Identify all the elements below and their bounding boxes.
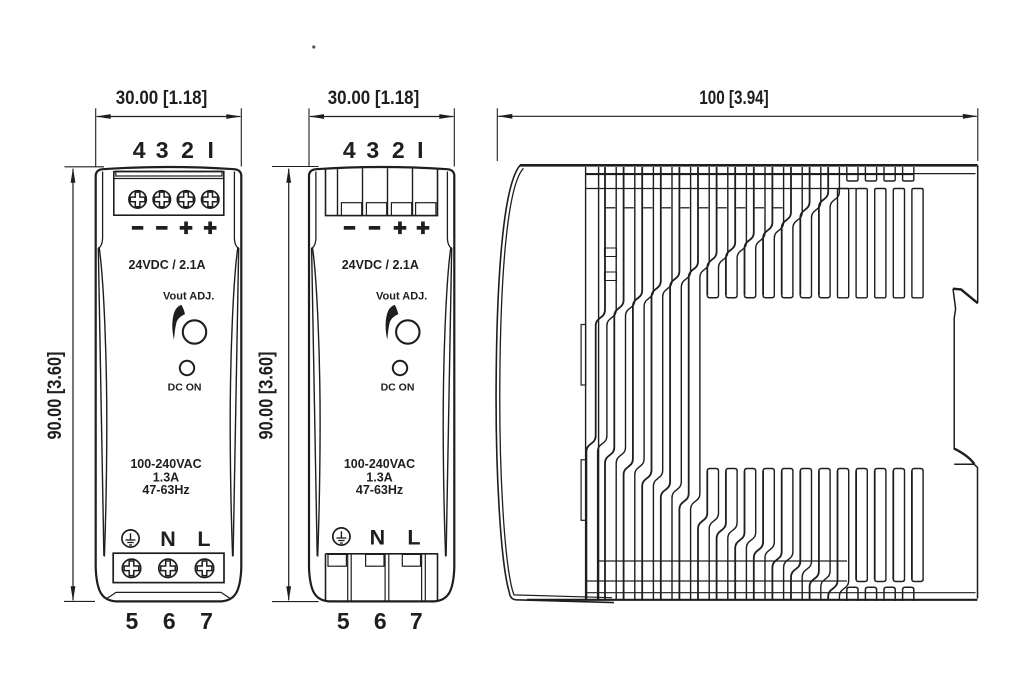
svg-text:6: 6: [374, 608, 387, 634]
svg-text:I: I: [208, 137, 214, 163]
svg-text:7: 7: [200, 608, 213, 634]
svg-text:L: L: [197, 527, 210, 551]
svg-text:4: 4: [343, 137, 356, 163]
svg-text:Vout ADJ.: Vout ADJ.: [163, 291, 214, 303]
svg-text:90.00 [3.60]: 90.00 [3.60]: [257, 352, 278, 440]
svg-text:I: I: [417, 137, 423, 163]
svg-text:30.00 [1.18]: 30.00 [1.18]: [116, 88, 208, 109]
svg-text:N: N: [370, 526, 386, 550]
svg-text:24VDC / 2.1A: 24VDC / 2.1A: [342, 258, 419, 272]
svg-text:30.00 [1.18]: 30.00 [1.18]: [328, 88, 420, 109]
svg-text:90.00 [3.60]: 90.00 [3.60]: [45, 352, 66, 440]
svg-text:6: 6: [163, 608, 176, 634]
svg-text:Vout ADJ.: Vout ADJ.: [376, 291, 427, 303]
svg-text:100-240VAC: 100-240VAC: [130, 457, 201, 471]
svg-text:5: 5: [337, 608, 350, 634]
svg-text:47-63Hz: 47-63Hz: [356, 483, 403, 497]
svg-text:2: 2: [392, 137, 405, 163]
svg-text:2: 2: [181, 137, 194, 163]
svg-text:24VDC / 2.1A: 24VDC / 2.1A: [128, 258, 205, 272]
svg-text:7: 7: [410, 608, 423, 634]
svg-text:3: 3: [156, 137, 169, 163]
svg-text:DC ON: DC ON: [168, 381, 202, 393]
svg-text:100 [3.94]: 100 [3.94]: [699, 88, 769, 109]
svg-text:3: 3: [366, 137, 379, 163]
svg-text:100-240VAC: 100-240VAC: [344, 457, 415, 471]
svg-text:N: N: [160, 527, 176, 551]
svg-text:47-63Hz: 47-63Hz: [142, 483, 189, 497]
svg-text:L: L: [407, 526, 420, 550]
svg-text:4: 4: [133, 137, 146, 163]
svg-text:5: 5: [126, 608, 139, 634]
svg-text:DC ON: DC ON: [381, 381, 415, 393]
